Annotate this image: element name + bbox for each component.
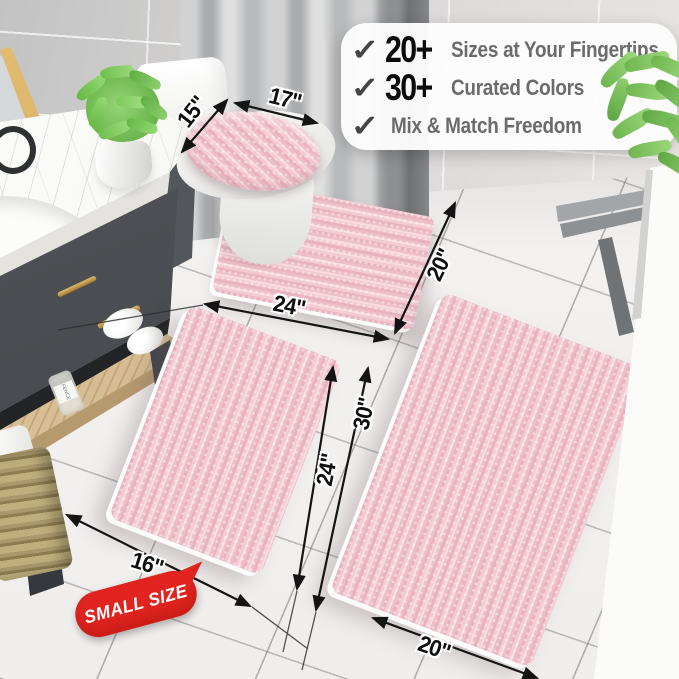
bathroom-product-photo: FENCE: [0, 0, 679, 679]
feature-number: 30+: [385, 67, 439, 109]
dimension-label-contour-width: 24": [271, 290, 307, 323]
feature-text: Curated Colors: [451, 75, 584, 101]
check-icon: ✓: [351, 71, 388, 106]
feature-number: 20+: [385, 29, 439, 71]
check-icon: ✓: [351, 109, 388, 144]
check-icon: ✓: [351, 33, 388, 68]
feature-text: Mix & Match Freedom: [391, 113, 582, 139]
